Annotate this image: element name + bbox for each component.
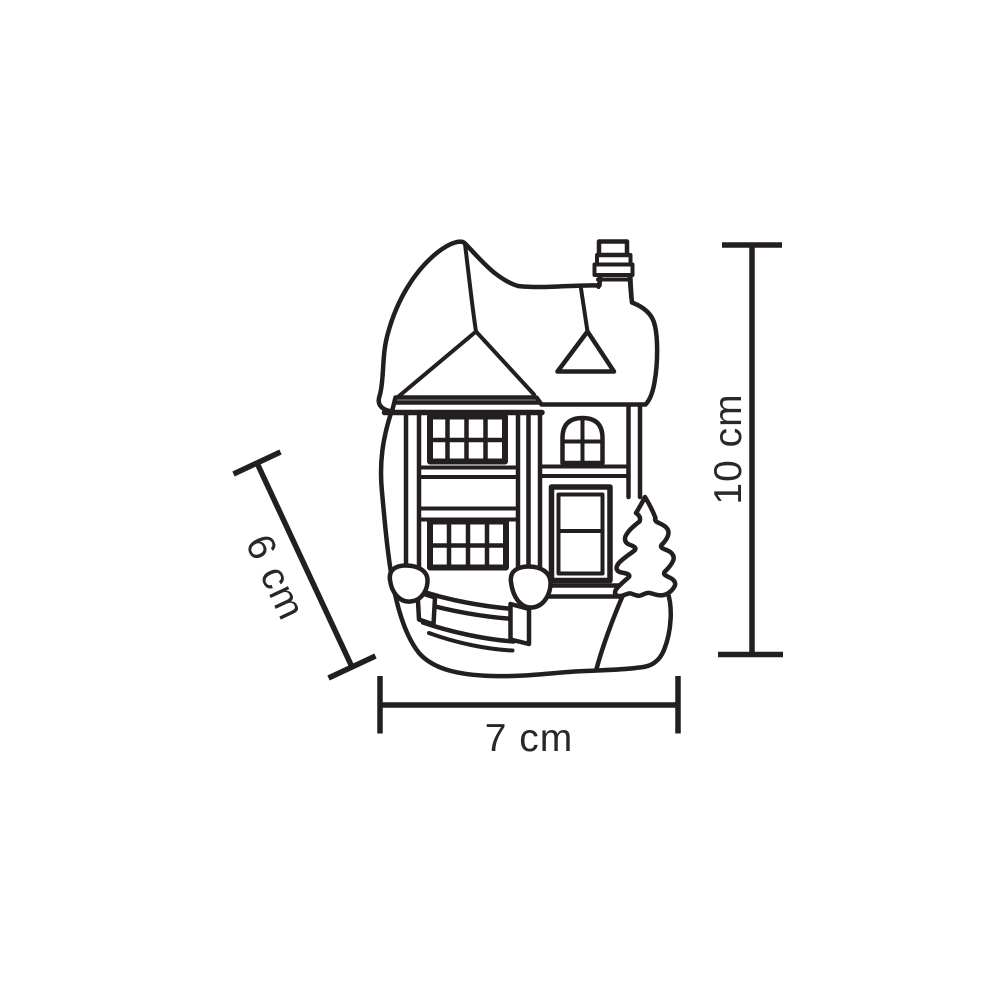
tree-mound — [597, 592, 671, 669]
fence-base-edge — [423, 623, 514, 642]
right-gate-ball — [511, 567, 551, 608]
left-pillar — [406, 413, 419, 582]
upper-window-grid — [432, 419, 503, 459]
depth-dimension-cap-bottom — [329, 656, 376, 678]
left-band-upper — [419, 468, 518, 478]
width-dimension: 7 cm — [380, 676, 678, 760]
garden-fence — [390, 566, 551, 651]
door — [552, 487, 611, 581]
depth-dimension-cap-top — [234, 452, 281, 474]
upper-window — [430, 417, 505, 462]
product-dimension-diagram: 10 cm 7 cm 6 cm — [0, 0, 1000, 1000]
height-dimension-label: 10 cm — [707, 393, 750, 504]
arched-window — [563, 418, 603, 463]
facade — [385, 403, 641, 597]
left-band-lower — [419, 509, 518, 520]
height-dimension: 10 cm — [707, 245, 783, 655]
lower-window — [430, 522, 506, 568]
door-panel — [559, 495, 603, 574]
center-pillar — [518, 413, 529, 584]
tree-mound-left-edge — [597, 595, 624, 669]
depth-dimension-label: 6 cm — [237, 528, 313, 626]
left-gate-ball — [390, 566, 428, 602]
pine-tree-outline — [615, 497, 675, 596]
chimney-cap — [599, 242, 627, 256]
tree-mound-right-edge — [640, 592, 671, 668]
lower-window-grid — [432, 524, 504, 565]
right-band — [540, 467, 629, 477]
right-wall — [629, 405, 641, 497]
house-line-art — [379, 242, 675, 677]
diagram-canvas: 10 cm 7 cm 6 cm — [0, 0, 1000, 1000]
fence-right-post — [511, 604, 530, 644]
pine-tree — [615, 497, 675, 596]
depth-dimension: 6 cm — [234, 452, 376, 678]
arched-window-mullion — [564, 420, 601, 463]
width-dimension-label: 7 cm — [485, 717, 574, 760]
